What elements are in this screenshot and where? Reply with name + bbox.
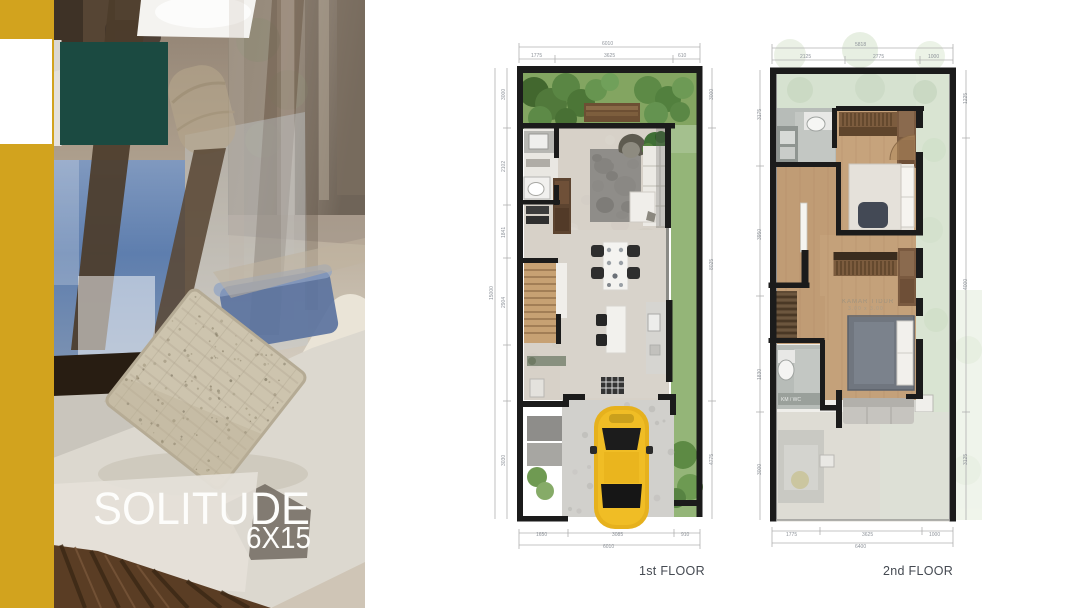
svg-text:6010: 6010 xyxy=(603,544,614,550)
svg-text:2nd FLOOR: 2nd FLOOR xyxy=(883,564,953,578)
svg-text:2102: 2102 xyxy=(501,161,507,172)
svg-text:1650: 1650 xyxy=(536,532,547,538)
svg-text:3085: 3085 xyxy=(612,532,623,538)
svg-text:3125: 3125 xyxy=(963,454,969,465)
svg-text:3.00 x 3.00: 3.00 x 3.00 xyxy=(848,306,884,312)
svg-text:6010: 6010 xyxy=(602,41,613,47)
svg-text:4775: 4775 xyxy=(709,454,715,465)
svg-text:3000: 3000 xyxy=(709,89,715,100)
svg-text:3625: 3625 xyxy=(862,532,873,538)
svg-text:1841: 1841 xyxy=(501,227,507,238)
svg-text:1st FLOOR: 1st FLOOR xyxy=(639,564,705,578)
svg-text:8025: 8025 xyxy=(709,259,715,270)
svg-text:1000: 1000 xyxy=(928,54,939,60)
svg-text:3625: 3625 xyxy=(604,53,615,59)
svg-text:2775: 2775 xyxy=(873,54,884,60)
svg-text:KM / WC: KM / WC xyxy=(781,397,801,403)
svg-text:1775: 1775 xyxy=(531,53,542,59)
svg-text:KAMAR TIDUR: KAMAR TIDUR xyxy=(842,299,894,305)
svg-text:3000: 3000 xyxy=(501,89,507,100)
svg-text:3030: 3030 xyxy=(501,455,507,466)
svg-text:1000: 1000 xyxy=(929,532,940,538)
svg-text:4000: 4000 xyxy=(963,279,969,290)
svg-text:3175: 3175 xyxy=(757,109,763,120)
svg-text:610: 610 xyxy=(678,53,687,59)
svg-text:3000: 3000 xyxy=(757,464,763,475)
svg-text:3950: 3950 xyxy=(757,229,763,240)
svg-text:5818: 5818 xyxy=(855,42,866,48)
svg-text:6400: 6400 xyxy=(855,544,866,550)
svg-text:1775: 1775 xyxy=(786,532,797,538)
svg-text:2125: 2125 xyxy=(800,54,811,60)
svg-text:1830: 1830 xyxy=(757,369,763,380)
svg-text:910: 910 xyxy=(681,532,690,538)
svg-text:1225: 1225 xyxy=(963,93,969,104)
svg-text:2904: 2904 xyxy=(501,297,507,308)
svg-text:6X15: 6X15 xyxy=(246,520,311,555)
svg-text:15000: 15000 xyxy=(489,286,495,300)
